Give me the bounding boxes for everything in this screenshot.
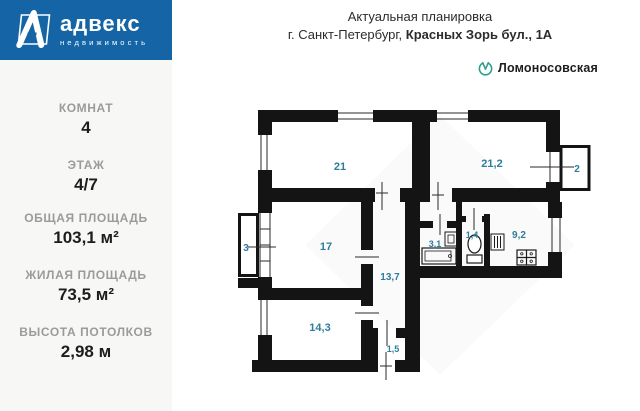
metro-icon: [478, 61, 493, 76]
address-city: г. Санкт-Петербург,: [288, 27, 406, 42]
stat-total-area-value: 103,1 м²: [0, 228, 172, 248]
stat-floor-value: 4/7: [0, 175, 172, 195]
stats-sidebar: КОМНАТ 4 ЭТАЖ 4/7 ОБЩАЯ ПЛОЩАДЬ 103,1 м²…: [0, 60, 172, 411]
listing-flyer: адвекс недвижимость КОМНАТ 4 ЭТАЖ 4/7 ОБ…: [0, 0, 640, 411]
stat-ceiling-height-value: 2,98 м: [0, 342, 172, 362]
floor-plan: 21 21,2 2 3 17 13,7 14,3 1,5 3,1 1,4 9,2: [230, 90, 610, 390]
page-title: Актуальная планировка: [230, 9, 610, 24]
brand-text: адвекс недвижимость: [60, 13, 148, 47]
metro-line: Ломоносовская: [478, 59, 598, 77]
brand-header: адвекс недвижимость: [0, 0, 172, 60]
stat-ceiling-height: ВЫСОТА ПОТОЛКОВ 2,98 м: [0, 325, 172, 362]
stat-ceiling-height-label: ВЫСОТА ПОТОЛКОВ: [0, 325, 172, 339]
room-21-label: 21: [334, 161, 346, 173]
brand-tagline: недвижимость: [60, 38, 148, 47]
corridor-label: 13,7: [380, 272, 400, 283]
room-17-label: 17: [320, 241, 332, 253]
plan-header: Актуальная планировка г. Санкт-Петербург…: [230, 9, 610, 42]
stat-total-area: ОБЩАЯ ПЛОЩАДЬ 103,1 м²: [0, 211, 172, 248]
stat-rooms-label: КОМНАТ: [0, 101, 172, 115]
metro-station-name: Ломоносовская: [498, 61, 598, 75]
room-21-2-label: 21,2: [481, 158, 502, 170]
advecs-logo-icon: [14, 10, 52, 50]
address-street: Красных Зорь бул., 1А: [406, 27, 552, 42]
stat-living-area: ЖИЛАЯ ПЛОЩАДЬ 73,5 м²: [0, 268, 172, 305]
balcony-2-label: 2: [574, 164, 580, 175]
brand-name: адвекс: [60, 13, 148, 35]
stat-total-area-label: ОБЩАЯ ПЛОЩАДЬ: [0, 211, 172, 225]
address-line: г. Санкт-Петербург, Красных Зорь бул., 1…: [230, 27, 610, 42]
kitchen-label: 9,2: [512, 230, 526, 241]
stat-floor: ЭТАЖ 4/7: [0, 158, 172, 195]
room-14-3-label: 14,3: [309, 322, 330, 334]
stat-rooms-value: 4: [0, 118, 172, 138]
stat-rooms: КОМНАТ 4: [0, 101, 172, 138]
stat-living-area-value: 73,5 м²: [0, 285, 172, 305]
stat-living-area-label: ЖИЛАЯ ПЛОЩАДЬ: [0, 268, 172, 282]
bathroom-label: 3,1: [429, 239, 442, 249]
balcony-3-label: 3: [243, 243, 249, 254]
wc-label: 1,4: [466, 230, 479, 240]
stat-floor-label: ЭТАЖ: [0, 158, 172, 172]
room-1-5-label: 1,5: [387, 344, 400, 354]
